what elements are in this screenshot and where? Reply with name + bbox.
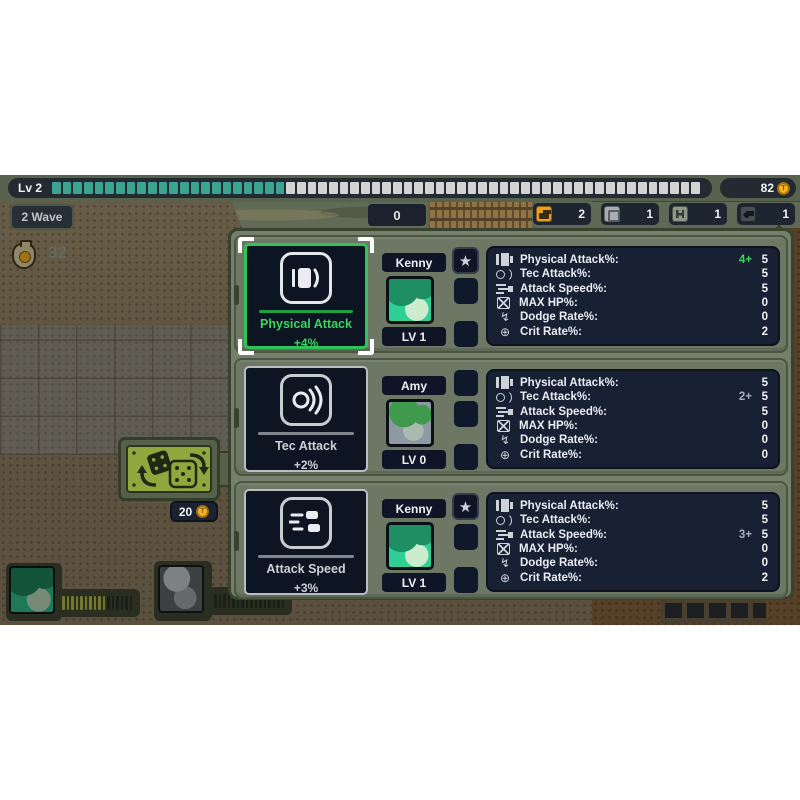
unit-level: LV 1 [382, 327, 446, 346]
stat-row: Attack Speed%:5 [496, 405, 768, 419]
stat-value: 5 [756, 406, 768, 418]
stat-row: ⊕Crit Rate%:0 [496, 448, 768, 462]
stat-value: 5 [756, 283, 768, 295]
stat-label: MAX HP%: [519, 297, 578, 309]
crit-icon: ⊕ [496, 571, 514, 585]
stat-value: 0 [756, 557, 768, 569]
stat-value: 2 [756, 572, 768, 584]
unit-level: LV 0 [382, 450, 446, 469]
equip-slot[interactable] [454, 370, 478, 396]
stat-label: Tec Attack%: [520, 391, 591, 403]
stat-row: Physical Attack%:5 [496, 376, 768, 390]
stat-value: 5 [756, 254, 768, 266]
tank-icon [536, 206, 552, 222]
attack-speed-icon [496, 528, 514, 542]
equip-slot[interactable] [454, 278, 478, 304]
upgrade-card-physical-attack[interactable]: Physical Attack +4% [244, 243, 368, 349]
upgrade-row-1: Physical Attack +4% Kenny ★ LV 1 Physica… [234, 235, 788, 353]
dice-screen [126, 445, 212, 493]
card-icon-box [280, 497, 332, 549]
crit-icon: ⊕ [496, 325, 514, 339]
equip-slot[interactable] [454, 401, 478, 427]
stat-label: Attack Speed%: [520, 529, 607, 541]
crit-icon: ⊕ [496, 448, 514, 462]
upgrade-row-3: Attack Speed +3% Kenny ★ LV 1 Physical A… [234, 481, 788, 599]
game-screen: Lv 2 82 T 2 Wave 0 2 1 [0, 0, 800, 800]
stat-row: ↯Dodge Rate%:0 [496, 433, 768, 447]
stats-panel: Physical Attack%:5 Tec Attack%:5 Attack … [486, 492, 780, 592]
selection-bracket [358, 237, 374, 253]
tec-attack-icon [496, 267, 514, 281]
level-label: Lv 2 [18, 181, 42, 195]
card-divider [259, 310, 353, 313]
card-bonus: +3% [246, 581, 366, 595]
coin-amount: 82 [761, 181, 774, 195]
kill-counter-value: 0 [393, 208, 400, 223]
physical-attack-icon [496, 253, 514, 267]
unit-portrait-amy [386, 399, 434, 447]
card-divider [258, 432, 354, 435]
item-count: 1 [714, 207, 721, 221]
stat-label: MAX HP%: [519, 420, 578, 432]
item-count: 1 [646, 207, 653, 221]
stats-panel: Physical Attack%:4+5 Tec Attack%:5 Attac… [486, 246, 780, 346]
stat-row: ↯Dodge Rate%:0 [496, 556, 768, 570]
reroll-cost: 20 [179, 505, 192, 519]
dodge-icon: ↯ [496, 433, 514, 447]
star-icon: ★ [459, 252, 472, 270]
dodge-icon: ↯ [496, 556, 514, 570]
physical-attack-icon [496, 376, 514, 390]
kill-counter: 0 [368, 204, 426, 226]
stat-label: Crit Rate%: [520, 572, 582, 584]
stat-value: 5 [756, 500, 768, 512]
item-slot-barbell[interactable]: 1 [669, 203, 727, 225]
stat-value: 5 [756, 268, 768, 280]
item-slot-tank[interactable]: 2 [533, 203, 591, 225]
item-slot-pistol[interactable]: 1 [737, 203, 795, 225]
equip-slot[interactable] [454, 321, 478, 347]
equip-slot[interactable] [454, 444, 478, 470]
game-viewport: Lv 2 82 T 2 Wave 0 2 1 [0, 175, 800, 625]
stat-value: 0 [756, 449, 768, 461]
letterbox-bottom [0, 625, 800, 800]
star-button[interactable]: ★ [452, 247, 479, 274]
stat-label: Tec Attack%: [520, 268, 591, 280]
physical-attack-icon [496, 499, 514, 513]
unit-portrait-kenny [386, 276, 434, 324]
stat-label: Dodge Rate%: [520, 311, 598, 323]
max-hp-icon [497, 543, 510, 555]
item-count: 1 [782, 207, 789, 221]
star-icon: ★ [459, 498, 472, 516]
card-bonus: +4% [247, 336, 365, 350]
stat-label: Physical Attack%: [520, 377, 619, 389]
fence-decoration [430, 202, 532, 228]
stat-value: 5 [756, 529, 768, 541]
card-title: Attack Speed [246, 562, 366, 576]
stat-bonus: 4+ [739, 254, 752, 266]
stat-label: Attack Speed%: [520, 283, 607, 295]
reroll-cost-badge: 20 T [170, 501, 218, 522]
equip-slot[interactable] [454, 524, 478, 550]
attack-speed-icon [496, 282, 514, 296]
stat-value: 5 [756, 377, 768, 389]
stat-label: Tec Attack%: [520, 514, 591, 526]
unit-level: LV 1 [382, 573, 446, 592]
max-hp-icon [497, 420, 510, 432]
stat-row: MAX HP%:0 [496, 419, 768, 433]
coin-icon: T [196, 505, 209, 518]
stat-label: Crit Rate%: [520, 449, 582, 461]
stat-row: Tec Attack%:5 [496, 267, 768, 281]
stat-value: 2 [756, 326, 768, 338]
selection-bracket [238, 237, 254, 253]
stat-row: Physical Attack%:5 [496, 499, 768, 513]
stat-row: Physical Attack%:4+5 [496, 253, 768, 267]
wave-badge: 2 Wave [10, 204, 74, 230]
attack-speed-icon [496, 405, 514, 419]
card-title: Tec Attack [246, 439, 366, 453]
upgrade-card-tec-attack[interactable]: Tec Attack +2% [244, 366, 368, 472]
stat-bonus: 2+ [739, 391, 752, 403]
unit-portrait-kenny [386, 522, 434, 570]
wave-label: 2 Wave [22, 210, 63, 224]
stat-value: 0 [756, 434, 768, 446]
stat-bonus: 3+ [739, 529, 752, 541]
coin-icon: T [777, 182, 790, 195]
speed-lines-icon [289, 506, 323, 540]
stat-value: 0 [756, 297, 768, 309]
upgrade-panel: Physical Attack +4% Kenny ★ LV 1 Physica… [228, 228, 794, 600]
stat-value: 0 [756, 311, 768, 323]
pistol-icon [740, 206, 756, 222]
stat-value: 5 [756, 391, 768, 403]
stat-value: 0 [756, 420, 768, 432]
stat-label: Physical Attack%: [520, 500, 619, 512]
level-strip: Lv 2 82 T [0, 175, 800, 201]
stat-label: Dodge Rate%: [520, 434, 598, 446]
equip-slot[interactable] [454, 567, 478, 593]
card-icon-box [280, 374, 332, 426]
letterbox-top [0, 0, 800, 175]
stat-value: 5 [756, 514, 768, 526]
upgrade-row-2: Tec Attack +2% Amy LV 0 Physical Attack%… [234, 358, 788, 476]
tec-waves-icon [289, 383, 323, 417]
tec-attack-icon [496, 390, 514, 404]
stat-row: Attack Speed%:3+5 [496, 528, 768, 542]
stat-row: Tec Attack%:2+5 [496, 390, 768, 404]
card-bonus: +2% [246, 458, 366, 472]
item-count: 2 [578, 207, 585, 221]
stats-panel: Physical Attack%:5 Tec Attack%:2+5 Attac… [486, 369, 780, 469]
unit-name: Kenny [382, 499, 446, 518]
stat-label: MAX HP%: [519, 543, 578, 555]
stat-row: ⊕Crit Rate%:2 [496, 325, 768, 339]
stat-row: ⊕Crit Rate%:2 [496, 571, 768, 585]
stat-row: MAX HP%:0 [496, 542, 768, 556]
unit-name: Kenny [382, 253, 446, 272]
max-hp-icon [497, 297, 510, 309]
barbell-icon [672, 206, 688, 222]
crate-icon [604, 206, 620, 222]
item-slot-crate[interactable]: 1 [601, 203, 659, 225]
stat-label: Dodge Rate%: [520, 557, 598, 569]
stat-row: Attack Speed%:5 [496, 282, 768, 296]
unit-name: Amy [382, 376, 446, 395]
card-icon-box [280, 252, 332, 304]
star-button[interactable]: ★ [452, 493, 479, 520]
stat-label: Crit Rate%: [520, 326, 582, 338]
stat-label: Physical Attack%: [520, 254, 619, 266]
stat-row: MAX HP%:0 [496, 296, 768, 310]
dodge-icon: ↯ [496, 310, 514, 324]
stat-value: 0 [756, 543, 768, 555]
level-progress-bar: Lv 2 [8, 178, 712, 198]
stat-row: Tec Attack%:5 [496, 513, 768, 527]
stat-label: Attack Speed%: [520, 406, 607, 418]
tec-attack-icon [496, 513, 514, 527]
coin-counter: 82 T [720, 178, 796, 198]
consumable-slots: 2 1 1 1 [533, 203, 795, 225]
level-progress-segments [52, 182, 702, 194]
reroll-dice-button[interactable] [118, 437, 220, 501]
machine-gun-icon [289, 261, 323, 295]
card-title: Physical Attack [247, 317, 365, 331]
card-divider [258, 555, 354, 558]
upgrade-card-attack-speed[interactable]: Attack Speed +3% [244, 489, 368, 595]
stat-row: ↯Dodge Rate%:0 [496, 310, 768, 324]
